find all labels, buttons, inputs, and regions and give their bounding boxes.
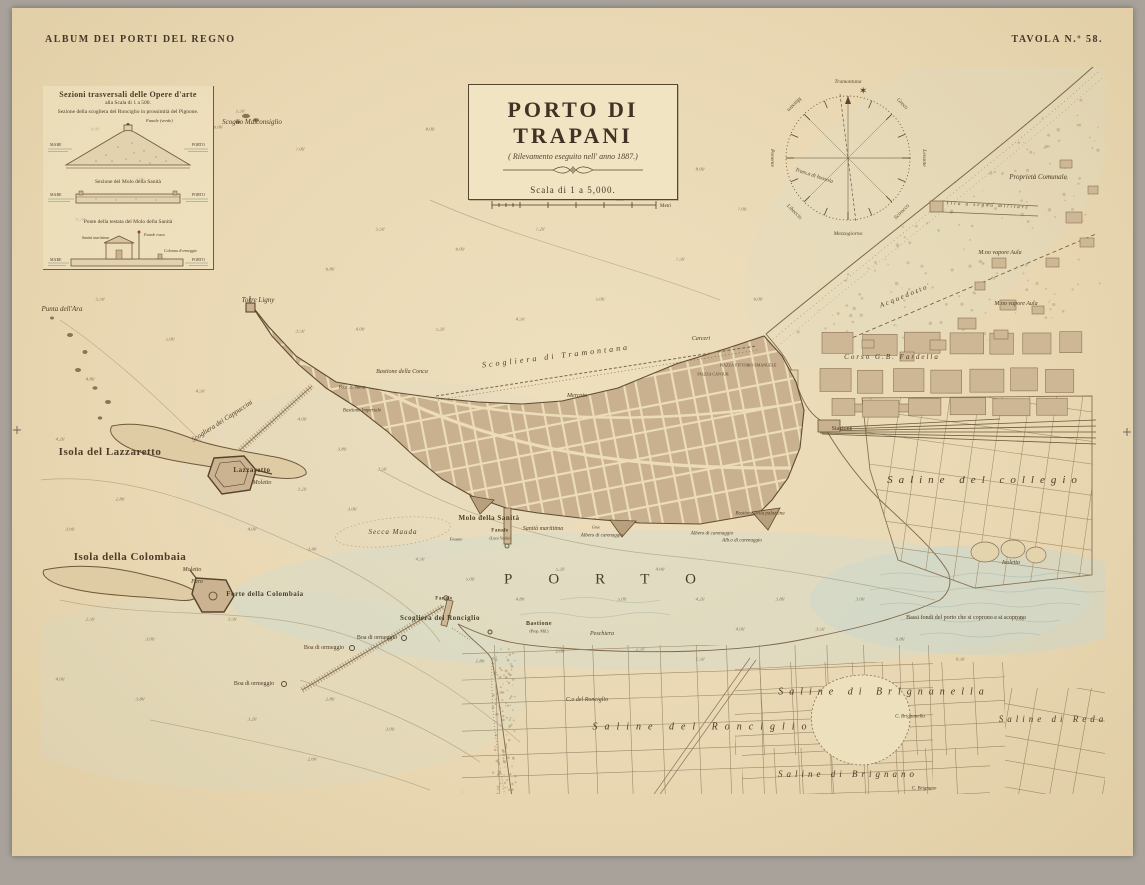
compass-rose: ✶ TramontanaGrecoLevanteSciroccoMezzogio… <box>762 72 934 244</box>
map-subtitle: ( Rilevamento eseguito nell' anno 1887.) <box>469 152 677 161</box>
wind-label: Mezzogiorno <box>834 231 863 237</box>
elevation-drawing-testata: Sanità marittima Fanale rosso Colonna d'… <box>46 225 210 273</box>
north-star-icon: ✶ <box>859 86 867 97</box>
svg-text:PORTO: PORTO <box>192 192 205 197</box>
svg-text:Sanità marittima: Sanità marittima <box>82 235 109 240</box>
scale-text: Scala di 1 a 5,000. <box>469 185 677 195</box>
wind-label: Tramontana <box>835 79 862 85</box>
svg-text:Fanale rosso: Fanale rosso <box>143 232 165 237</box>
scale-bar: Metri <box>488 198 658 208</box>
section-drawing-ronciglio: Fanale (verde) MARE PORTO <box>46 115 210 171</box>
sanita-pier <box>504 508 511 548</box>
svg-text:Metri: Metri <box>660 204 672 209</box>
legend-subtitle: alla Scala di 1 a 500. <box>43 100 213 106</box>
wind-label: Levante <box>921 149 927 166</box>
svg-text:PORTO: PORTO <box>192 257 205 262</box>
section-drawing-molo: MARE PORTO <box>46 185 210 211</box>
map-title: PORTO DI TRAPANI <box>469 97 677 149</box>
map-sheet: { "page": { "header_left": "ALBUM DEI PO… <box>0 0 1145 885</box>
svg-text:PORTO: PORTO <box>192 142 205 147</box>
svg-text:MARE: MARE <box>50 142 62 147</box>
torre-ligny-fort <box>246 303 255 312</box>
wind-label: Ponente <box>769 149 775 167</box>
saline-reda-grid <box>967 653 1145 833</box>
svg-text:MARE: MARE <box>50 257 62 262</box>
legend-title: Sezioni trasversali delle Opere d'arte <box>43 90 213 99</box>
legend-panel: Sezioni trasversali delle Opere d'arte a… <box>43 86 214 270</box>
svg-text:Colonna d'ormeggio: Colonna d'ormeggio <box>164 248 197 253</box>
north-arrow-icon <box>845 96 851 104</box>
title-block: PORTO DI TRAPANI ( Rilevamento eseguito … <box>468 84 678 200</box>
station-building <box>818 420 840 432</box>
pond-outline <box>811 675 910 765</box>
saline-road <box>652 658 756 797</box>
flourish-ornament <box>469 163 677 181</box>
svg-text:MARE: MARE <box>50 192 62 197</box>
svg-text:Fanale (verde): Fanale (verde) <box>145 118 173 123</box>
